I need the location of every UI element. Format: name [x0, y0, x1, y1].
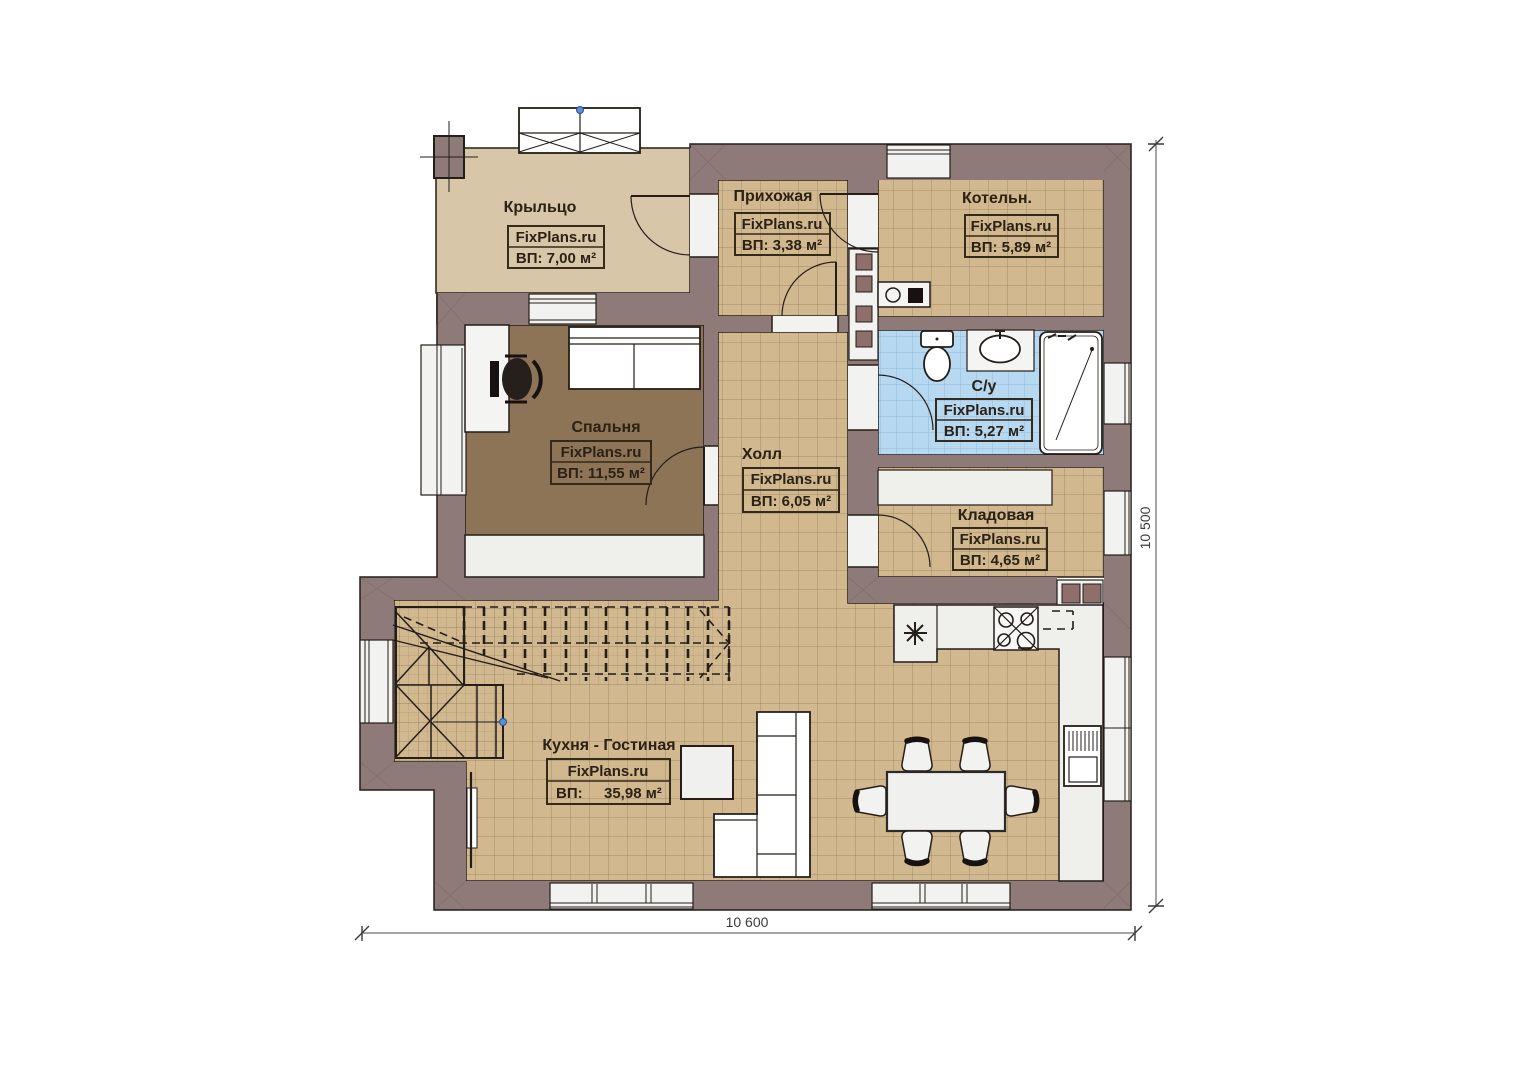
svg-text:Котельн.: Котельн. [962, 190, 1032, 207]
svg-text:FixPlans.ru: FixPlans.ru [960, 531, 1041, 548]
svg-text:Холл: Холл [742, 446, 782, 463]
svg-text:ВП: 3,38 м²: ВП: 3,38 м² [742, 237, 822, 254]
svg-text:Крыльцо: Крыльцо [504, 199, 577, 216]
svg-text:FixPlans.ru: FixPlans.ru [944, 402, 1025, 419]
svg-text:Кладовая: Кладовая [958, 507, 1035, 524]
svg-text:ВП: 7,00 м²: ВП: 7,00 м² [516, 250, 596, 267]
svg-text:10 500: 10 500 [1137, 506, 1153, 549]
svg-text:ВП: 11,55 м²: ВП: 11,55 м² [557, 465, 645, 482]
svg-text:ВП: 5,27 м²: ВП: 5,27 м² [944, 423, 1024, 440]
svg-text:FixPlans.ru: FixPlans.ru [561, 444, 642, 461]
svg-text:Кухня - Гостиная: Кухня - Гостиная [542, 737, 675, 754]
svg-text:FixPlans.ru: FixPlans.ru [568, 763, 649, 780]
svg-text:Прихожая: Прихожая [734, 188, 813, 205]
svg-text:ВП: 4,65 м²: ВП: 4,65 м² [960, 552, 1040, 569]
svg-text:С/у: С/у [972, 378, 997, 395]
svg-text:FixPlans.ru: FixPlans.ru [742, 216, 823, 233]
svg-text:FixPlans.ru: FixPlans.ru [971, 218, 1052, 235]
svg-text:FixPlans.ru: FixPlans.ru [751, 471, 832, 488]
svg-text:FixPlans.ru: FixPlans.ru [516, 229, 597, 246]
svg-text:ВП:: ВП: [556, 785, 583, 802]
svg-text:10 600: 10 600 [726, 914, 769, 930]
svg-text:ВП: 6,05 м²: ВП: 6,05 м² [751, 493, 831, 510]
svg-text:35,98 м²: 35,98 м² [604, 785, 662, 802]
svg-text:Спальня: Спальня [571, 419, 640, 436]
svg-text:ВП: 5,89 м²: ВП: 5,89 м² [971, 239, 1051, 256]
